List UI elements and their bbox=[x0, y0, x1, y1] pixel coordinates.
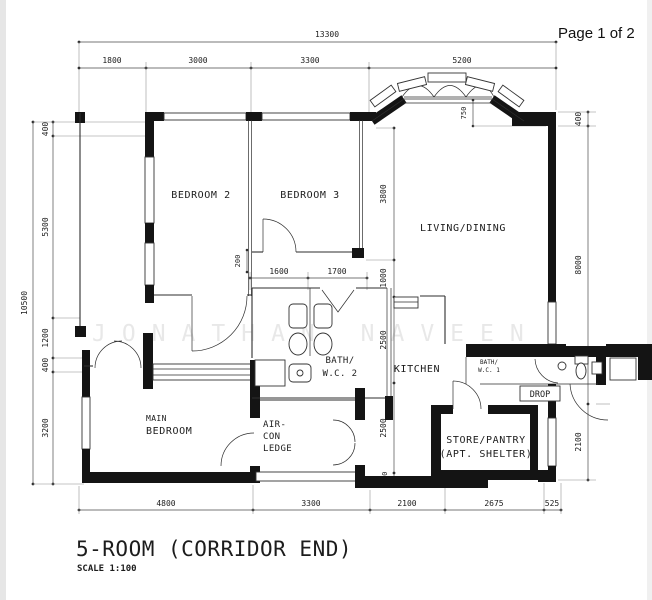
dim-mid-0: 3800 bbox=[379, 184, 388, 203]
dim-offset-200: 200 bbox=[234, 255, 242, 268]
label-store-line2: (APT. SHELTER) bbox=[440, 449, 533, 460]
label-store-line1: STORE/PANTRY bbox=[446, 435, 525, 446]
dim-left-0: 400 bbox=[41, 122, 50, 137]
dim-bottom-0: 4800 bbox=[156, 499, 175, 508]
dim-mid-1: 1000 bbox=[379, 268, 388, 287]
dim-right-1: 8000 bbox=[574, 255, 583, 274]
dim-mid-3: 2500 bbox=[379, 418, 388, 437]
dim-top-1: 3000 bbox=[188, 56, 207, 65]
dim-overall-height: 10500 bbox=[20, 291, 29, 315]
dim-bottom-3: 2675 bbox=[484, 499, 503, 508]
dim-bottom-4: 525 bbox=[545, 499, 560, 508]
dim-bottom-2: 2100 bbox=[397, 499, 416, 508]
dim-bottom-1: 3300 bbox=[301, 499, 320, 508]
dim-overall-width: 13300 bbox=[315, 30, 339, 39]
scan-edge-right bbox=[647, 0, 652, 600]
label-living-dining: LIVING/DINING bbox=[420, 223, 506, 234]
dim-left-2: 1200 bbox=[41, 328, 50, 347]
scale-note: SCALE 1:100 bbox=[77, 564, 137, 574]
label-bath1-line1: BATH/ bbox=[480, 359, 498, 366]
label-aircon-line2: CON bbox=[263, 432, 280, 442]
scan-edge-left bbox=[0, 0, 6, 600]
floor-plan-svg: JONATHAN NAVEEN bbox=[0, 0, 652, 600]
label-bath2-line1: BATH/ bbox=[325, 356, 354, 366]
label-bath1-line2: W.C. 1 bbox=[478, 367, 500, 374]
label-bedroom3: BEDROOM 3 bbox=[280, 190, 340, 201]
dim-right-2: 2100 bbox=[574, 432, 583, 451]
label-aircon-line3: LEDGE bbox=[263, 444, 292, 454]
dim-top-3: 5200 bbox=[452, 56, 471, 65]
dim-top-2: 3300 bbox=[300, 56, 319, 65]
plan-title: 5-ROOM (CORRIDOR END) bbox=[76, 537, 352, 561]
bay-window bbox=[370, 73, 524, 121]
floorplan-page: JONATHAN NAVEEN bbox=[0, 0, 652, 600]
label-bath2-line2: W.C. 2 bbox=[323, 369, 358, 379]
label-main-line2: BEDROOM bbox=[146, 426, 192, 437]
dim-left-3: 400 bbox=[41, 358, 50, 373]
dim-top-0: 1800 bbox=[102, 56, 121, 65]
label-drop: DROP bbox=[530, 390, 550, 400]
label-kitchen: KITCHEN bbox=[394, 364, 440, 375]
dim-left-1: 5300 bbox=[41, 217, 50, 236]
dim-right-0: 400 bbox=[574, 112, 583, 127]
label-aircon-line1: AIR- bbox=[263, 420, 286, 430]
dim-bath-0: 1600 bbox=[269, 267, 288, 276]
dim-bay-750: 750 bbox=[460, 107, 468, 120]
label-main-line1: MAIN bbox=[146, 414, 167, 423]
page-indicator: Page 1 of 2 bbox=[558, 25, 635, 42]
dim-left-4: 3200 bbox=[41, 418, 50, 437]
dim-bath-1: 1700 bbox=[327, 267, 346, 276]
label-bedroom2: BEDROOM 2 bbox=[171, 190, 231, 201]
